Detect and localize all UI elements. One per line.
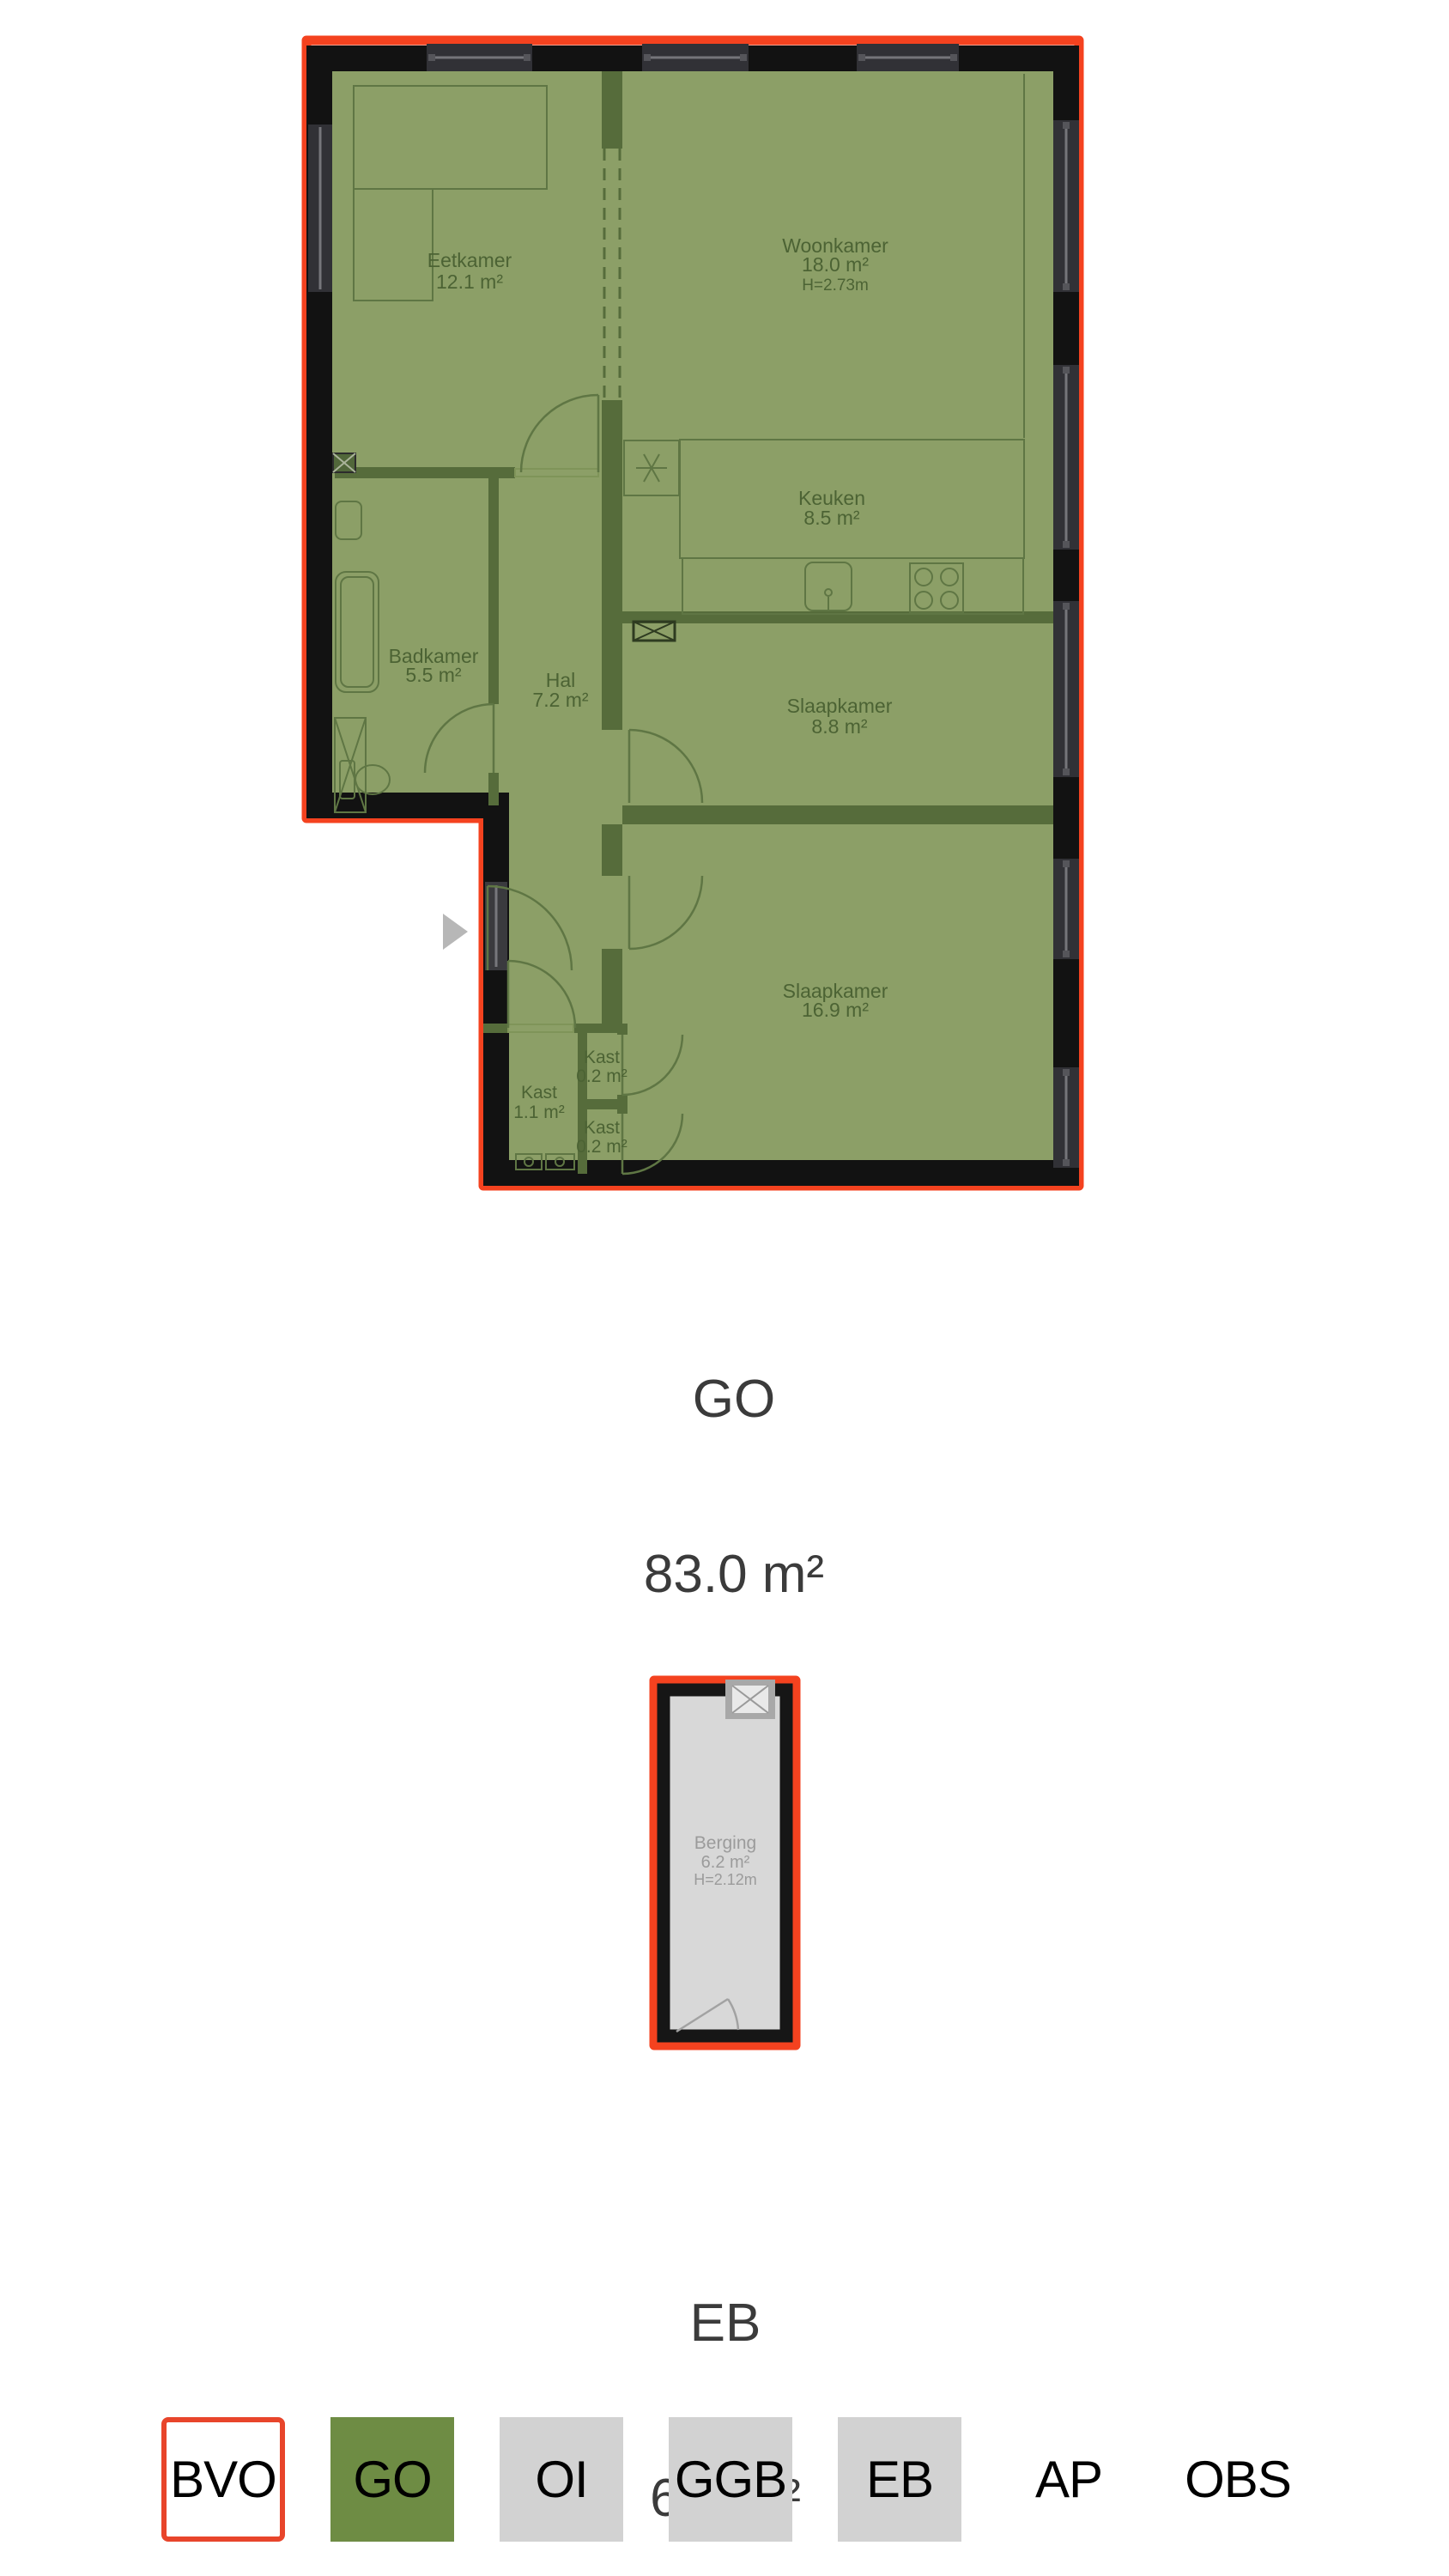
room-area: 12.1 m²: [436, 270, 503, 293]
legend-item-oi[interactable]: OI: [500, 2417, 623, 2542]
go-caption-code: GO: [519, 1370, 949, 1429]
legend-item-bvo[interactable]: BVO: [161, 2417, 285, 2542]
room-area: 18.0 m²: [802, 253, 869, 276]
room-area: 5.5 m²: [405, 664, 462, 686]
room-label: Kast: [521, 1083, 557, 1103]
room-area: 7.2 m²: [532, 689, 589, 711]
legend-item-eb[interactable]: EB: [838, 2417, 961, 2542]
room-height: H=2.12m: [694, 1871, 757, 1888]
room-label: Slaapkamer: [787, 695, 893, 717]
legend: BVO GO OI GGB EB AP OBS: [161, 2417, 1300, 2542]
legend-item-ggb[interactable]: GGB: [669, 2417, 792, 2542]
room-area: 0.2 m²: [576, 1066, 627, 1086]
eb-caption-code: EB: [511, 2294, 940, 2353]
room-label: Kast: [584, 1118, 620, 1138]
legend-item-go[interactable]: GO: [330, 2417, 454, 2542]
go-floorplan: Eetkamer 12.1 m² Woonkamer 18.0 m² H=2.7…: [306, 40, 1079, 1186]
room-area: 6.2 m²: [701, 1853, 750, 1872]
room-area: 1.1 m²: [513, 1103, 565, 1122]
entrance-arrow-icon: [443, 914, 468, 950]
room-area: 8.8 m²: [811, 715, 868, 738]
room-label: Kast: [584, 1048, 620, 1067]
room-area: 16.9 m²: [802, 999, 869, 1021]
room-label: Berging: [694, 1833, 756, 1853]
room-height: H=2.73m: [802, 276, 869, 295]
legend-item-ap[interactable]: AP: [1007, 2417, 1131, 2542]
room-label: Eetkamer: [427, 249, 512, 271]
eb-floorplan: Berging 6.2 m² H=2.12m: [654, 1680, 796, 2045]
room-area: 8.5 m²: [803, 507, 860, 529]
vent-box-icon: [333, 453, 355, 472]
legend-item-obs[interactable]: OBS: [1176, 2417, 1300, 2542]
room-area: 0.2 m²: [576, 1137, 627, 1157]
go-caption-area: 83.0 m²: [519, 1546, 949, 1604]
go-caption: GO 83.0 m²: [519, 1254, 949, 1721]
floorplan-report-page: Eetkamer 12.1 m² Woonkamer 18.0 m² H=2.7…: [0, 0, 1449, 2576]
